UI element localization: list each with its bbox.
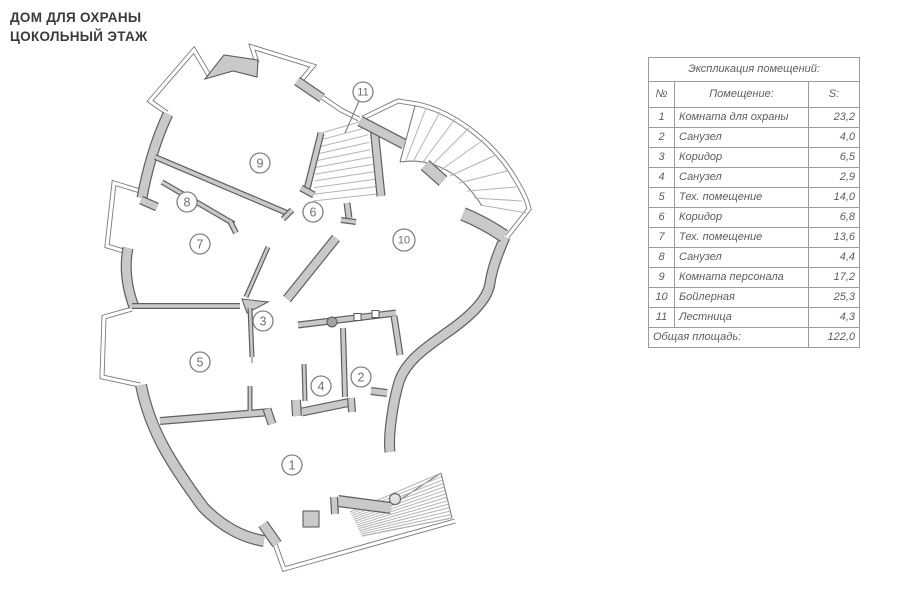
legend-row-6: 6Коридор6,8 (649, 208, 860, 228)
cell-num: 8 (649, 248, 675, 268)
legend-total-value: 122,0 (809, 328, 860, 348)
round-column (327, 317, 337, 327)
legend-row-2: 2Санузел4,0 (649, 128, 860, 148)
room-label-3: 3 (253, 311, 273, 331)
svg-text:7: 7 (197, 238, 204, 252)
cell-name: Тех. помещение (675, 228, 809, 248)
cell-name: Санузел (675, 168, 809, 188)
stair-column (390, 494, 401, 505)
room-label-6: 6 (303, 202, 323, 222)
cell-num: 6 (649, 208, 675, 228)
cell-num: 4 (649, 168, 675, 188)
cell-num: 11 (649, 308, 675, 328)
legend-row-5: 5Тех. помещение14,0 (649, 188, 860, 208)
legend-header-row: № Помещение: S: (649, 82, 860, 108)
cell-area: 4,3 (809, 308, 860, 328)
cell-name: Коридор (675, 148, 809, 168)
room-label-8: 8 (177, 192, 197, 212)
cell-name: Комната для охраны (675, 108, 809, 128)
cell-num: 7 (649, 228, 675, 248)
legend-row-8: 8Санузел4,4 (649, 248, 860, 268)
cell-name: Коридор (675, 208, 809, 228)
cell-area: 25,3 (809, 288, 860, 308)
column-room1 (303, 511, 319, 527)
cell-area: 13,6 (809, 228, 860, 248)
cell-area: 23,2 (809, 108, 860, 128)
room-label-5: 5 (190, 352, 210, 372)
cell-num: 9 (649, 268, 675, 288)
cell-area: 4,0 (809, 128, 860, 148)
cell-num: 10 (649, 288, 675, 308)
svg-text:4: 4 (318, 380, 325, 394)
cell-name: Лестница (675, 308, 809, 328)
legend-row-9: 9Комната персонала17,2 (649, 268, 860, 288)
cell-area: 17,2 (809, 268, 860, 288)
legend-row-7: 7Тех. помещение13,6 (649, 228, 860, 248)
cell-area: 6,5 (809, 148, 860, 168)
legend-col-name: Помещение: (675, 82, 809, 108)
svg-text:9: 9 (257, 157, 264, 171)
legend-total-row: Общая площадь: 122,0 (649, 328, 860, 348)
svg-text:1: 1 (289, 459, 296, 473)
room-label-7: 7 (190, 234, 210, 254)
cell-num: 1 (649, 108, 675, 128)
room-label-1: 1 (282, 455, 302, 475)
room-label-9: 9 (250, 153, 270, 173)
legend-row-11: 11Лестница4,3 (649, 308, 860, 328)
cell-area: 4,4 (809, 248, 860, 268)
svg-text:6: 6 (310, 206, 317, 220)
cell-name: Бойлерная (675, 288, 809, 308)
cell-area: 2,9 (809, 168, 860, 188)
legend-title-row: Экспликация помещений: (649, 58, 860, 82)
cell-num: 2 (649, 128, 675, 148)
legend-title: Экспликация помещений: (649, 58, 860, 82)
wall-fixture (354, 314, 361, 321)
legend-row-3: 3Коридор6,5 (649, 148, 860, 168)
svg-text:11: 11 (357, 87, 368, 99)
legend-col-area: S: (809, 82, 860, 108)
legend-col-num: № (649, 82, 675, 108)
svg-text:2: 2 (358, 371, 365, 385)
svg-text:10: 10 (398, 235, 410, 247)
room-label-11: 11 (353, 82, 373, 102)
room-legend-table: Экспликация помещений: № Помещение: S: 1… (648, 57, 860, 348)
room-label-4: 4 (311, 376, 331, 396)
cell-num: 5 (649, 188, 675, 208)
room-label-10: 10 (393, 229, 415, 251)
cell-area: 14,0 (809, 188, 860, 208)
legend-row-10: 10Бойлерная25,3 (649, 288, 860, 308)
cell-name: Тех. помещение (675, 188, 809, 208)
cell-area: 6,8 (809, 208, 860, 228)
cell-num: 3 (649, 148, 675, 168)
legend-row-4: 4Санузел2,9 (649, 168, 860, 188)
svg-text:8: 8 (184, 196, 191, 210)
wall-fixture (372, 311, 379, 318)
legend-row-1: 1Комната для охраны23,2 (649, 108, 860, 128)
svg-text:3: 3 (260, 315, 267, 329)
floor-plan-page: ДОМ ДЛЯ ОХРАНЫ ЦОКОЛЬНЫЙ ЭТАЖ 1234567891… (0, 0, 900, 600)
cell-name: Комната персонала (675, 268, 809, 288)
cell-name: Санузел (675, 248, 809, 268)
svg-text:5: 5 (197, 356, 204, 370)
cell-name: Санузел (675, 128, 809, 148)
room-label-2: 2 (351, 367, 371, 387)
legend-total-label: Общая площадь: (649, 328, 809, 348)
